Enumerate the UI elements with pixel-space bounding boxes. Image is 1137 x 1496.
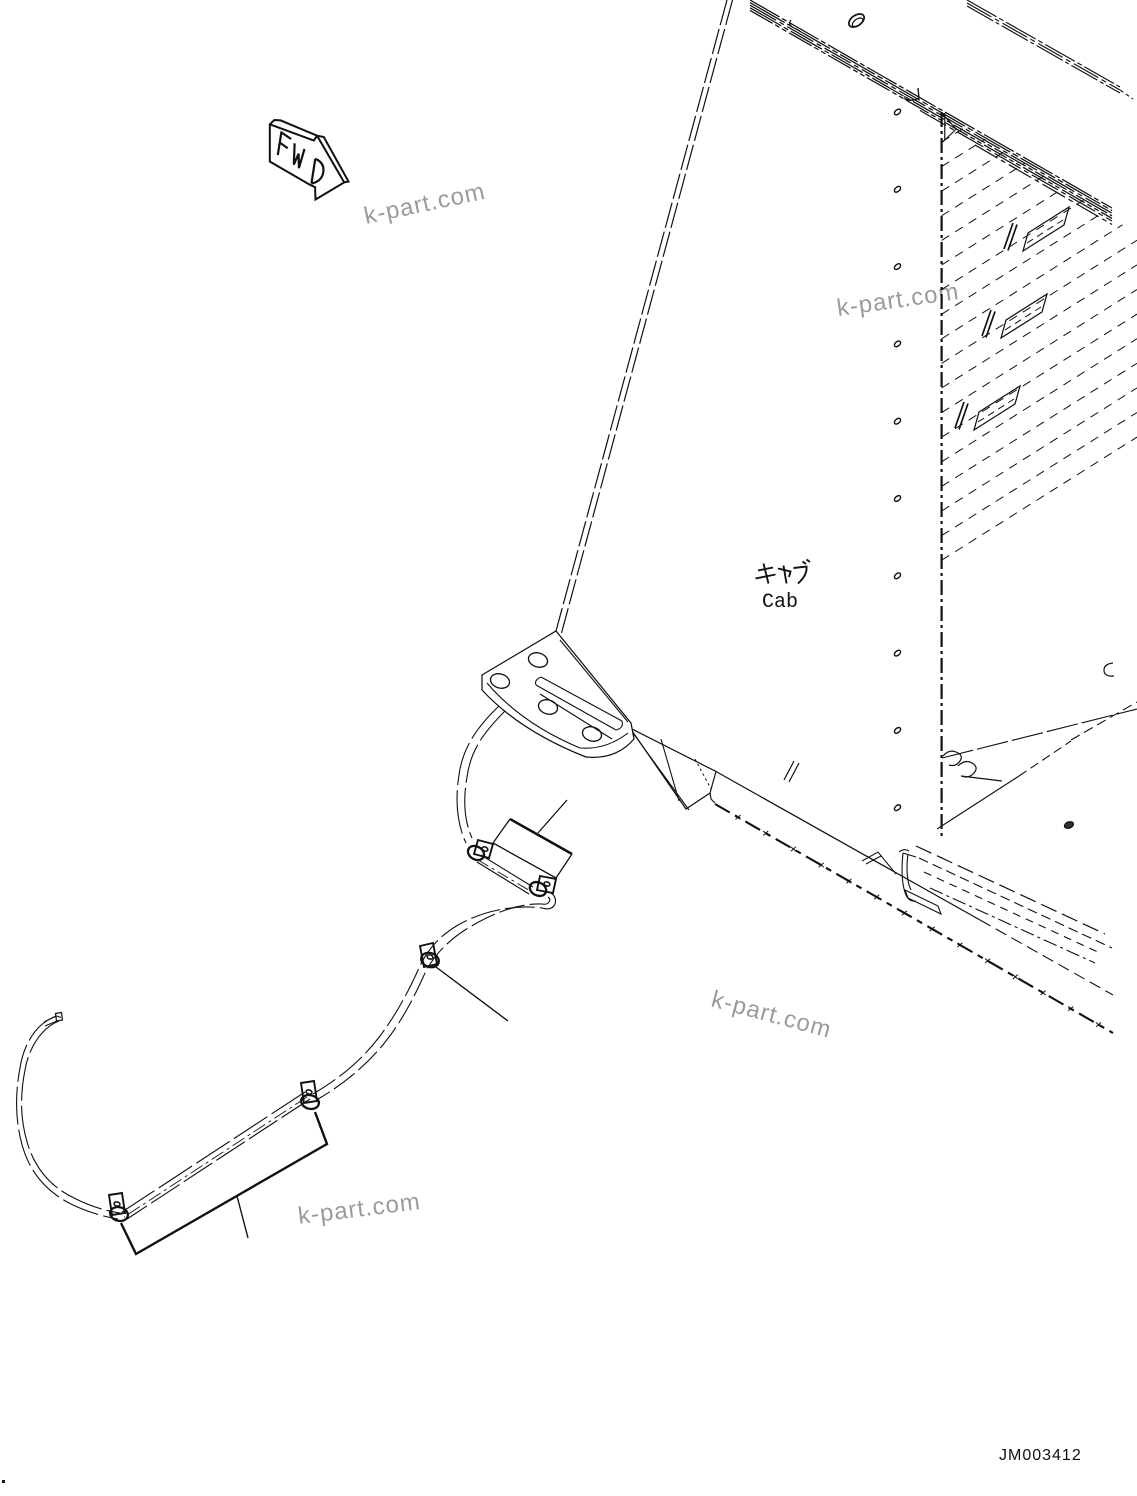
svg-text:Cab: Cab xyxy=(762,591,798,614)
svg-text:JM003412: JM003412 xyxy=(999,1447,1082,1464)
